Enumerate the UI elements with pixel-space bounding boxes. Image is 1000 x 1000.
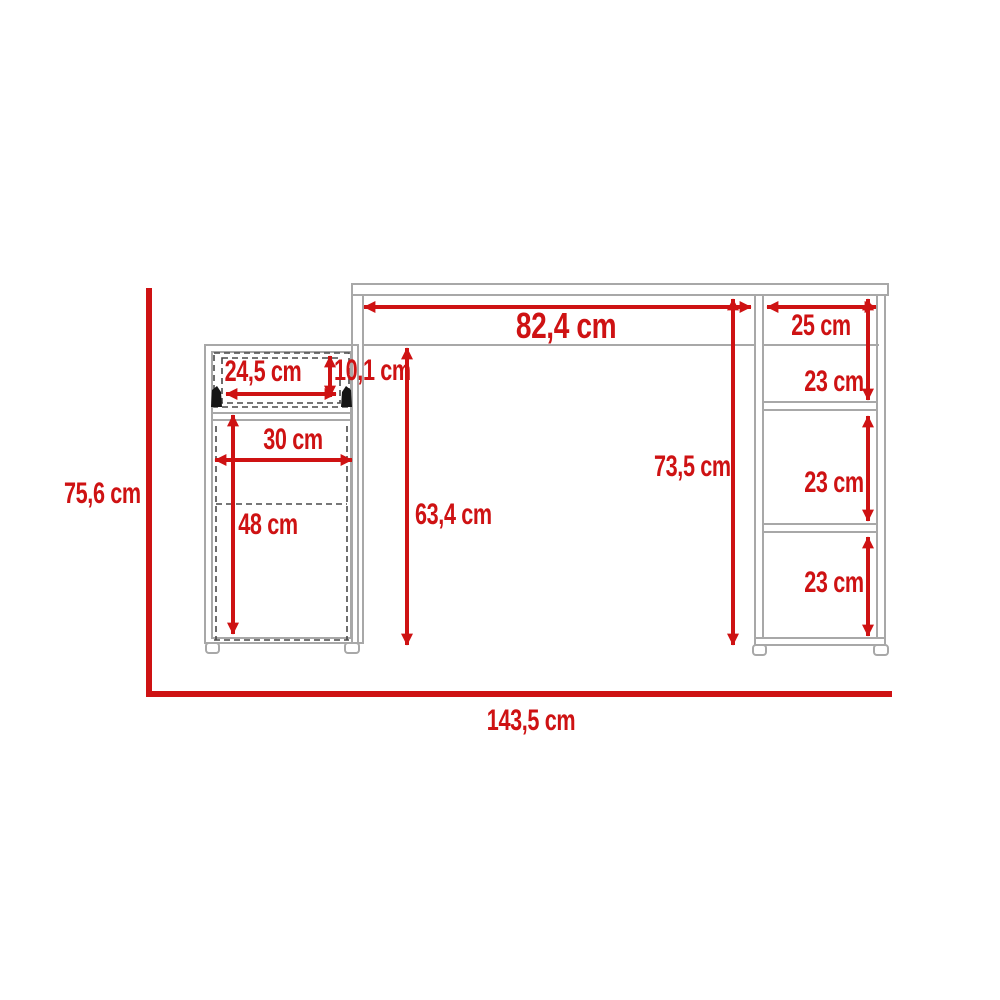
furniture-dimension-diagram: 82,4 cm 25 cm 23 cm 23 cm 23 cm 24,5 cm …	[0, 0, 1000, 1000]
label-door-height: 48 cm	[238, 510, 297, 540]
shelf-unit-left-panel	[755, 295, 763, 638]
label-overall-height: 75,6 cm	[64, 479, 141, 509]
label-shelf-section-1: 23 cm	[804, 367, 863, 397]
overall-dimension-line	[149, 288, 892, 694]
label-drawer-width: 24,5 cm	[225, 357, 302, 387]
shelf-unit-left-foot	[753, 645, 766, 655]
label-shelf-section-2: 23 cm	[804, 468, 863, 498]
shelf-board-2	[763, 524, 877, 532]
desk-top-outline	[352, 284, 888, 295]
label-drawer-height: 10,1 cm	[334, 356, 411, 386]
label-shelf-unit-width: 25 cm	[791, 311, 850, 341]
label-cabinet-side-height: 63,4 cm	[415, 500, 492, 530]
shelf-unit-right-foot	[874, 645, 888, 655]
label-cabinet-width: 30 cm	[263, 425, 322, 455]
shelf-board-1	[763, 402, 877, 410]
cabinet-left-foot	[206, 643, 219, 653]
cabinet-right-foot	[345, 643, 359, 653]
shelf-unit-bottom-board	[755, 638, 885, 645]
furniture-line-art	[0, 0, 1000, 1000]
shelf-unit-right-panel	[877, 295, 885, 638]
label-desktop-width: 82,4 cm	[516, 308, 616, 344]
label-shelf-section-3: 23 cm	[804, 568, 863, 598]
label-desk-clearance-height: 73,5 cm	[654, 452, 731, 482]
cabinet-outer-panel	[205, 345, 358, 643]
label-overall-width: 143,5 cm	[487, 706, 575, 736]
